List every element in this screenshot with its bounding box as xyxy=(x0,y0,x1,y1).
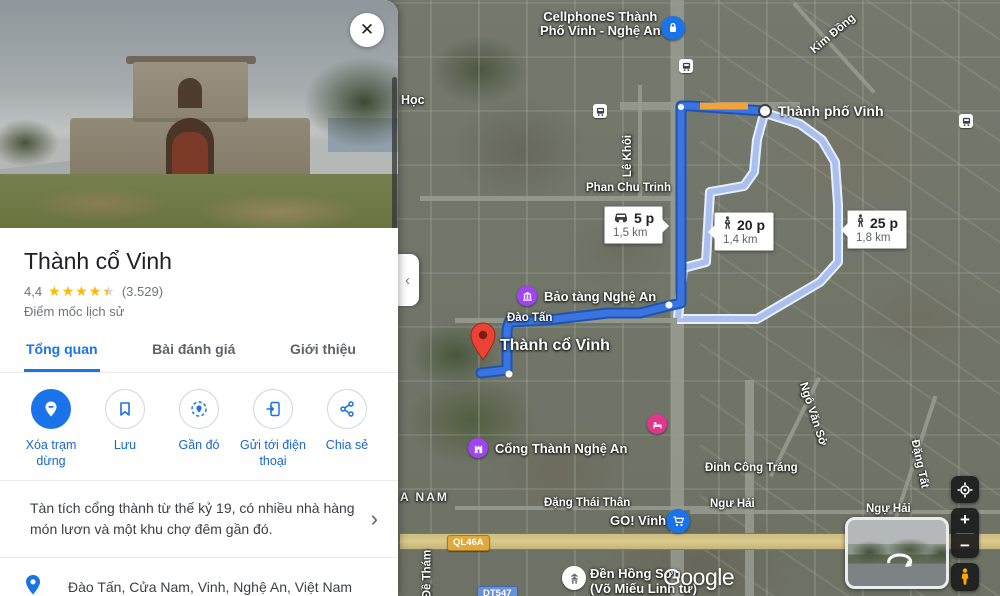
nearby-label: Gần đó xyxy=(178,437,219,453)
star-partial-icon: ★ xyxy=(102,283,116,299)
cellphones-store-icon[interactable] xyxy=(661,16,685,40)
drive-time-badge[interactable]: 5 p 1,5 km xyxy=(604,206,663,244)
collapse-panel-button[interactable]: ‹ xyxy=(396,254,419,306)
place-address: Đào Tấn, Cửa Nam, Vinh, Nghệ An, Việt Na… xyxy=(68,579,352,595)
pegman-button[interactable] xyxy=(951,563,979,591)
zoom-in-button[interactable]: + xyxy=(951,508,979,533)
citadel-gate-icon[interactable] xyxy=(468,438,488,458)
street-label-dinh-cong-trang: Đinh Công Tráng xyxy=(705,462,798,474)
tab-about[interactable]: Giới thiệu xyxy=(288,333,358,372)
star-rating: ★★★★★ xyxy=(48,283,116,300)
send-to-phone-icon xyxy=(253,389,293,429)
poi-label-cellphones-line1: CellphoneS Thành xyxy=(540,10,661,24)
panel-tabs: Tổng quan Bài đánh giá Giới thiệu xyxy=(0,319,398,373)
address-pin-icon xyxy=(24,574,42,596)
google-maps-app: Học CellphoneS Thành Phố Vinh - Nghệ An … xyxy=(0,0,1000,596)
walk-time: 20 p xyxy=(737,217,765,233)
temple-icon[interactable] xyxy=(562,566,586,590)
walk-time-badge-20[interactable]: 20 p 1,4 km xyxy=(714,212,774,251)
road-shield-ql46a: QL46A xyxy=(447,535,490,551)
bus-stop-icon[interactable] xyxy=(593,104,607,118)
rating-row[interactable]: 4,4 ★★★★★ (3.529) xyxy=(0,275,398,300)
poi-label-thanh-pho-vinh: Thành phố Vinh xyxy=(778,103,884,119)
road-shield-dt547: DT547 xyxy=(477,586,518,596)
road-phan-chu-trinh xyxy=(420,196,675,201)
tab-overview[interactable]: Tổng quan xyxy=(24,333,100,372)
remove-stop-icon xyxy=(31,389,71,429)
save-button[interactable]: Lưu xyxy=(88,389,162,470)
address-row[interactable]: Đào Tấn, Cửa Nam, Vinh, Nghệ An, Việt Na… xyxy=(0,558,398,596)
tab-reviews[interactable]: Bài đánh giá xyxy=(150,333,237,372)
road-top-horizontal xyxy=(620,102,800,110)
remove-stop-label: Xóa trạm dừng xyxy=(14,437,88,470)
panel-scrollbar[interactable] xyxy=(392,77,397,228)
street-label-ngu-hai-left: Ngư Hải xyxy=(710,498,755,510)
hotel-icon[interactable] xyxy=(647,414,667,434)
museum-icon[interactable] xyxy=(517,286,537,306)
pedestrian-icon xyxy=(856,214,865,231)
google-logo: Google xyxy=(663,564,734,591)
nearby-icon xyxy=(179,389,219,429)
poi-label-cellphones: CellphoneS Thành Phố Vinh - Nghệ An xyxy=(540,10,661,38)
send-to-phone-button[interactable]: Gửi tới điện thoại xyxy=(236,389,310,470)
nearby-button[interactable]: Gần đó xyxy=(162,389,236,470)
rating-value: 4,4 xyxy=(24,284,42,299)
street-label-hoc: Học xyxy=(401,93,425,107)
bus-stop-icon[interactable] xyxy=(679,59,693,73)
street-label-de-tham: Đề Thám xyxy=(421,550,433,596)
send-to-phone-label: Gửi tới điện thoại xyxy=(236,437,310,470)
place-info: Thành cổ Vinh 4,4 ★★★★★ (3.529) Điểm mốc… xyxy=(0,228,398,596)
review-count[interactable]: (3.529) xyxy=(122,284,163,299)
save-label: Lưu xyxy=(114,437,136,453)
walk-distance: 1,8 km xyxy=(856,232,898,244)
description-row[interactable]: Tàn tích cổng thành từ thế kỷ 19, có nhi… xyxy=(0,481,398,557)
shopping-cart-icon[interactable] xyxy=(666,509,690,533)
street-label-phan-chu-trinh: Phan Chu Trinh xyxy=(586,182,671,194)
action-buttons-row: Xóa trạm dừng Lưu Gần đó xyxy=(0,373,398,480)
pedestrian-icon xyxy=(723,216,732,233)
close-icon[interactable]: ✕ xyxy=(350,13,384,47)
photo-grass xyxy=(0,174,398,228)
bookmark-icon xyxy=(105,389,145,429)
share-icon xyxy=(327,389,367,429)
drive-distance: 1,5 km xyxy=(613,227,654,239)
street-label-dang-thai-than: Đặng Thái Thân xyxy=(544,497,630,509)
place-details-panel: ✕ Thành cổ Vinh 4,4 ★★★★★ (3.529) Điểm m… xyxy=(0,0,398,596)
street-label-ngu-hai-right: Ngự Hải xyxy=(866,503,911,515)
area-label-cua-nam: A NAM xyxy=(400,490,449,504)
road-vertical-south xyxy=(745,380,754,596)
poi-label-cong-thanh-nghe-an: Cổng Thành Nghệ An xyxy=(495,441,627,456)
poi-label-bao-tang-nghe-an: Bảo tàng Nghệ An xyxy=(544,289,656,304)
photo-citadel-door xyxy=(172,132,208,176)
drive-time: 5 p xyxy=(634,210,654,226)
car-icon xyxy=(613,210,629,226)
remove-stop-button[interactable]: Xóa trạm dừng xyxy=(14,389,88,470)
zoom-control: + − xyxy=(951,508,979,558)
my-location-button[interactable] xyxy=(951,476,979,503)
share-button[interactable]: Chia sẻ xyxy=(310,389,384,470)
poi-label-cellphones-line2: Phố Vinh - Nghệ An xyxy=(540,24,661,38)
walk-distance: 1,4 km xyxy=(723,234,765,246)
zoom-out-button[interactable]: − xyxy=(951,534,979,559)
walk-time-badge-25[interactable]: 25 p 1,8 km xyxy=(847,210,907,249)
place-description: Tàn tích cổng thành từ thế kỷ 19, có nhi… xyxy=(30,498,357,540)
poi-label-thanh-co-vinh: Thành cổ Vinh xyxy=(500,337,610,355)
stars-full-icon: ★★★★ xyxy=(48,283,102,299)
road-dao-tan xyxy=(455,318,675,323)
street-view-preview[interactable] xyxy=(845,517,949,589)
chevron-right-icon[interactable]: › xyxy=(365,508,384,530)
poi-label-go-vinh: GO! Vinh xyxy=(610,513,666,528)
place-title: Thành cổ Vinh xyxy=(0,248,398,275)
walk-time: 25 p xyxy=(870,215,898,231)
bus-stop-icon[interactable] xyxy=(959,114,973,128)
place-photo[interactable] xyxy=(0,0,398,228)
street-label-le-khoi: Lê Khôi xyxy=(622,135,634,177)
street-label-dao-tan: Đào Tấn xyxy=(507,312,552,324)
share-label: Chia sẻ xyxy=(326,437,368,453)
street-view-arrow-icon xyxy=(881,550,919,572)
place-category: Điểm mốc lịch sử xyxy=(0,300,398,319)
photo-citadel-upper-arch xyxy=(178,78,202,108)
